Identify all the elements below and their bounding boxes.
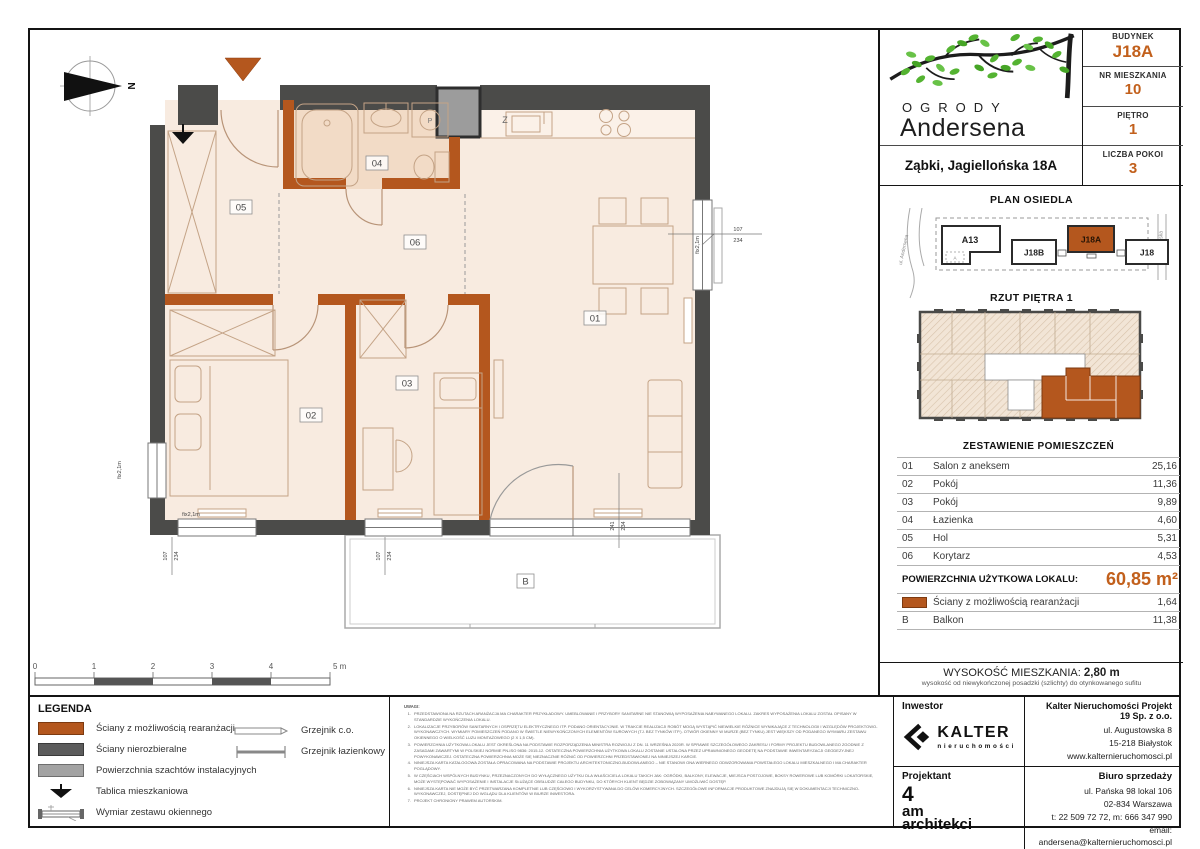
radiator-co-icon <box>233 724 289 738</box>
svg-text:5 m: 5 m <box>333 662 347 671</box>
logo-title-line1: OGRODY <box>902 100 1008 115</box>
investor-address-cell: Kalter Nieruchomości Projekt 19 Sp. z o.… <box>1024 697 1181 766</box>
rearrangeable-wall-swatch <box>38 722 84 735</box>
project-address: Ząbki, Jagiellońska 18A <box>880 145 1082 185</box>
legend-item: Powierzchnia szachtów instalacyjnych <box>38 763 379 778</box>
floor-overview-title: RZUT PIĘTRA 1 <box>880 292 1183 304</box>
unit-info-column: BUDYNEK J18A NR MIESZKANIA 10 PIĘTRO 1 L… <box>1082 28 1183 185</box>
note-item: 4.NINIEJSZA KARTA KATALOGOWA ZOSTAŁA OPR… <box>404 760 879 772</box>
designer-row: Projektant 4 am architekci Biuro sprzeda… <box>894 767 1181 849</box>
info-row-building: BUDYNEK J18A <box>1083 28 1183 67</box>
designer-cell: Projektant 4 am architekci <box>894 767 1024 849</box>
note-item: 3.POWIERZCHNIA UŻYTKOWA LOKALU JEST OKRE… <box>404 742 879 759</box>
building-a13 <box>942 226 1000 264</box>
tree-logo-graphic <box>888 30 1078 100</box>
table-row: 01Salon z aneksem25,16 <box>897 458 1180 476</box>
sales-office-label: Biuro sprzedaży <box>1034 771 1172 782</box>
table-row: 04Łazienka4,60 <box>897 512 1180 530</box>
designer-label: Projektant <box>902 771 1016 782</box>
floor-value: 1 <box>1083 121 1183 138</box>
table-row: 06Korytarz4,53 <box>897 548 1180 566</box>
investor-label: Inwestor <box>902 701 1016 712</box>
catalog-sheet: N 01 02 03 04 05 06 B Z P fix2,1m fix2,1… <box>0 0 1200 849</box>
svg-text:107: 107 <box>376 551 382 560</box>
orange-wall-swatch <box>902 597 927 608</box>
floor-plan-area: N 01 02 03 04 05 06 B Z P fix2,1m fix2,1… <box>28 28 878 695</box>
legend-item: Tablica mieszkaniowa <box>38 784 379 799</box>
note-item: 7.PROJEKT CHRONIONY PRAWEM AUTORSKIM. <box>404 798 879 804</box>
table-row: 03Pokój9,89 <box>897 494 1180 512</box>
svg-text:J18: J18 <box>1140 248 1154 258</box>
total-area-value: 60,85 m² <box>1106 569 1180 590</box>
kalter-logo-icon <box>902 718 933 756</box>
apartment-height-block: WYSOKOŚĆ MIESZKANIA: 2,80 m wysokość od … <box>880 662 1183 695</box>
room-label-06: 06 <box>410 238 421 249</box>
svg-text:107: 107 <box>163 551 169 560</box>
logo-leaves <box>900 33 1071 87</box>
svg-text:4: 4 <box>269 662 274 671</box>
room-label-04: 04 <box>372 159 383 170</box>
notes-box: UWAGI: 1.PRZEDSTAWIONA NA RZUTACH ARANŻA… <box>390 697 893 828</box>
bottom-strip: LEGENDA Ściany z możliwością rearanżacji… <box>28 695 1181 828</box>
north-label: N <box>125 82 136 89</box>
legend-box: LEGENDA Ściany z możliwością rearanżacji… <box>28 697 390 828</box>
note-item: 2.LOKALIZACJE PRZYBORÓW SANITARNYCH I OS… <box>404 724 879 741</box>
svg-text:241: 241 <box>610 521 616 530</box>
4am-logo: 4 am architekci <box>902 785 1016 832</box>
apartment-number-value: 10 <box>1083 81 1183 98</box>
room-label-05: 05 <box>236 203 247 214</box>
info-row-rooms-count: LICZBA POKOI 3 <box>1083 146 1183 185</box>
balcony-area-row: B Balkon 11,38 <box>897 612 1180 630</box>
legend-item: Grzejnik łazienkowy <box>233 744 385 759</box>
svg-text:2: 2 <box>151 662 156 671</box>
site-plan-title: PLAN OSIEDLA <box>880 194 1183 206</box>
note-item: 5.W CZĘŚCIACH WSPÓLNYCH BUDYNKU, PRZEZNA… <box>404 773 879 785</box>
room-label-03: 03 <box>402 379 413 390</box>
floor-overview-map <box>890 306 1173 428</box>
notes-title: UWAGI: <box>404 704 879 709</box>
rooms-table-title: ZESTAWIENIE POMIESZCZEŃ <box>897 441 1180 452</box>
investor-row: Inwestor KALTER nieruchomości Kalter Nie <box>894 697 1181 767</box>
note-item: 6.NINIEJSZA KARTA NIE MOŻE BYĆ PRZETWARZ… <box>404 786 879 798</box>
entrance-marker <box>225 58 261 81</box>
note-item: 1.PRZEDSTAWIONA NA RZUTACH ARANŻACJA MA … <box>404 711 879 723</box>
building-value: J18A <box>1083 42 1183 62</box>
fix-label-right: fix2,1m <box>695 236 701 254</box>
svg-text:A13: A13 <box>962 235 979 245</box>
room-label-02: 02 <box>306 411 317 422</box>
room-label-01: 01 <box>590 314 601 325</box>
table-row: 05Hol5,31 <box>897 530 1180 548</box>
info-row-apartment-number: NR MIESZKANIA 10 <box>1083 67 1183 106</box>
svg-text:A: A <box>953 256 956 261</box>
table-row: 02Pokój11,36 <box>897 476 1180 494</box>
window-dimension-icon <box>38 805 84 821</box>
kalter-logo: KALTER nieruchomości <box>902 718 1016 756</box>
svg-text:234: 234 <box>387 551 393 560</box>
site-plan-map: ul. Andersena ul. Jagiellońska A13 A J18… <box>890 208 1173 300</box>
investor-cell: Inwestor KALTER nieruchomości <box>894 697 1024 766</box>
washer-p-label: P <box>428 118 433 125</box>
rooms-table: ZESTAWIENIE POMIESZCZEŃ 01Salon z anekse… <box>897 441 1180 630</box>
info-row-floor: PIĘTRO 1 <box>1083 107 1183 146</box>
north-arrow: N <box>60 56 136 116</box>
svg-text:0: 0 <box>33 662 38 671</box>
svg-text:107: 107 <box>733 227 742 233</box>
sales-office-cell: Biuro sprzedaży ul. Pańska 98 lokal 106 … <box>1024 767 1181 849</box>
rooms-count-value: 3 <box>1083 160 1183 177</box>
scale-bar: 0 1 2 3 4 5 m <box>33 662 347 685</box>
staircase <box>1008 380 1034 410</box>
fix-label-win02: fix2,1m <box>182 512 200 518</box>
svg-text:234: 234 <box>733 238 742 244</box>
apartment-height-value: 2,80 m <box>1084 667 1120 679</box>
panel-divider <box>880 185 1183 186</box>
radiator-bathroom-icon <box>233 745 289 759</box>
company-blocks: Inwestor KALTER nieruchomości Kalter Nie <box>893 697 1181 828</box>
installation-shaft <box>437 88 480 137</box>
logo-cell: OGRODY Andersena <box>880 28 1082 145</box>
svg-text:J18B: J18B <box>1024 248 1044 258</box>
apartment-height-note: wysokość od niewykończonej posadzki (szl… <box>880 680 1183 687</box>
right-panel: OGRODY Andersena Ząbki, Jagiellońska 18A… <box>878 28 1181 695</box>
floor-plan-drawing: N 01 02 03 04 05 06 B Z P fix2,1m fix2,1… <box>28 28 878 695</box>
total-area-row: POWIERZCHNIA UŻYTKOWA LOKALU: 60,85 m² <box>897 566 1180 594</box>
svg-text:234: 234 <box>621 521 627 530</box>
svg-text:234: 234 <box>174 551 180 560</box>
legend-title: LEGENDA <box>38 703 379 715</box>
svg-text:1: 1 <box>92 662 97 671</box>
logo-title-line2: Andersena <box>900 114 1025 143</box>
fix-label-left: fix2,1m <box>117 461 123 479</box>
structural-wall-swatch <box>38 743 84 756</box>
legend-item: Grzejnik c.o. <box>233 723 385 738</box>
legend-item: Wymiar zestawu okiennego <box>38 805 379 820</box>
svg-text:3: 3 <box>210 662 215 671</box>
highlighted-unit <box>1042 368 1140 418</box>
balcony-label: B <box>522 577 528 588</box>
shaft-swatch <box>38 764 84 777</box>
info-board-icon <box>38 784 84 799</box>
kitchen-z-label: Z <box>502 115 508 125</box>
svg-text:J18A: J18A <box>1081 235 1101 245</box>
walls-area-row: Ściany z możliwością rearanżacji 1,64 <box>897 594 1180 612</box>
